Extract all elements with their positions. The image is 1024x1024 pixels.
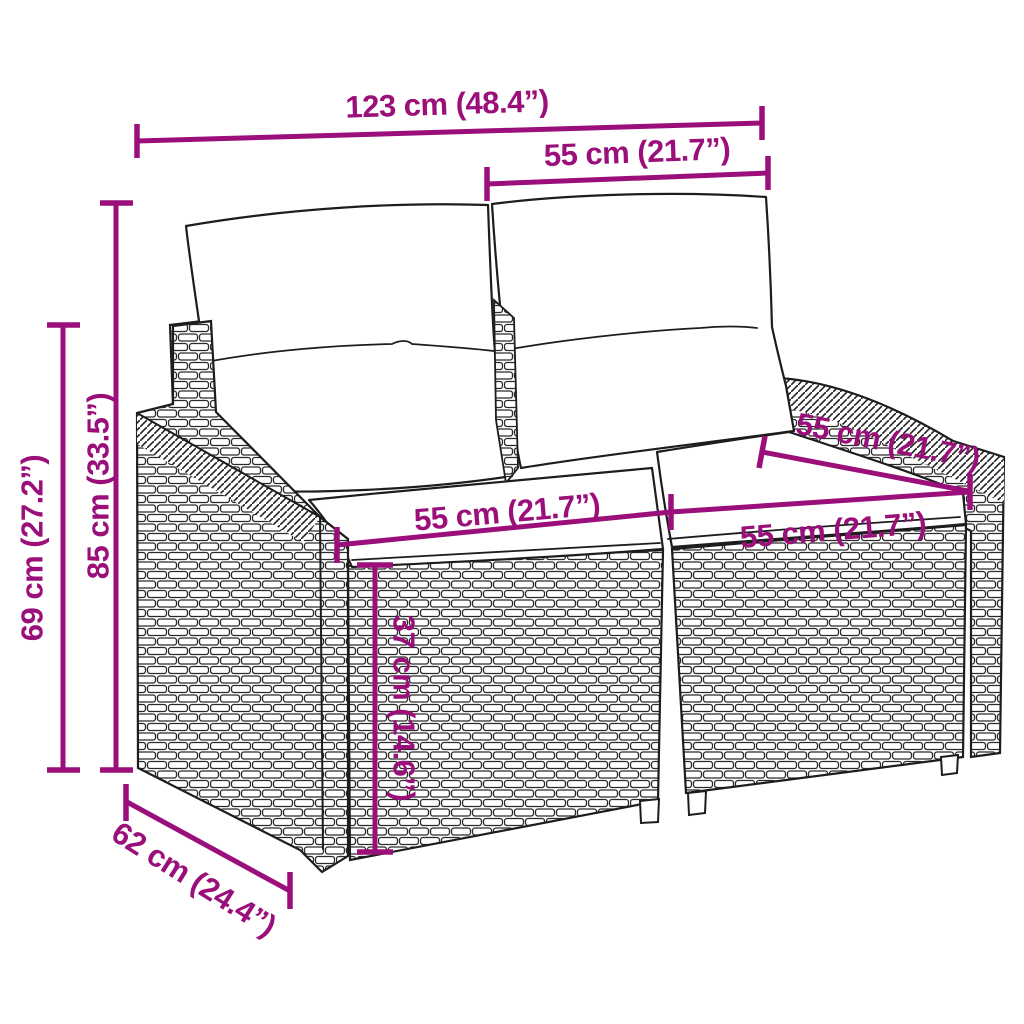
dim-backrest-width-label: 55 cm (21.7”) [543,131,731,173]
dim-total-height: 85 cm (33.5”) [81,203,134,770]
product-dimension-diagram: 123 cm (48.4”) 55 cm (21.7”) 85 cm (33.5… [0,0,1024,1024]
dim-overall-width-label: 123 cm (48.4”) [345,83,549,124]
foot-seam-right [688,791,706,815]
sofa-diagram-canvas: 123 cm (48.4”) 55 cm (21.7”) 85 cm (33.5… [0,0,1024,1024]
dim-total-height-label: 85 cm (33.5”) [81,393,116,580]
dim-backrest-width: 55 cm (21.7”) [487,131,768,201]
base-right-module [672,525,966,793]
foot-right-end [941,755,958,775]
dim-seat-height-label: 37 cm (14.6”) [387,615,422,802]
dim-overall-depth-label: 62 cm (24.4”) [106,815,283,944]
back-cushion-right [492,194,794,468]
dim-backrest-width-line [487,173,768,184]
dim-armrest-height-label: 69 cm (27.2”) [15,455,50,642]
foot-seam-left [640,799,659,823]
dim-armrest-height: 69 cm (27.2”) [15,325,81,770]
